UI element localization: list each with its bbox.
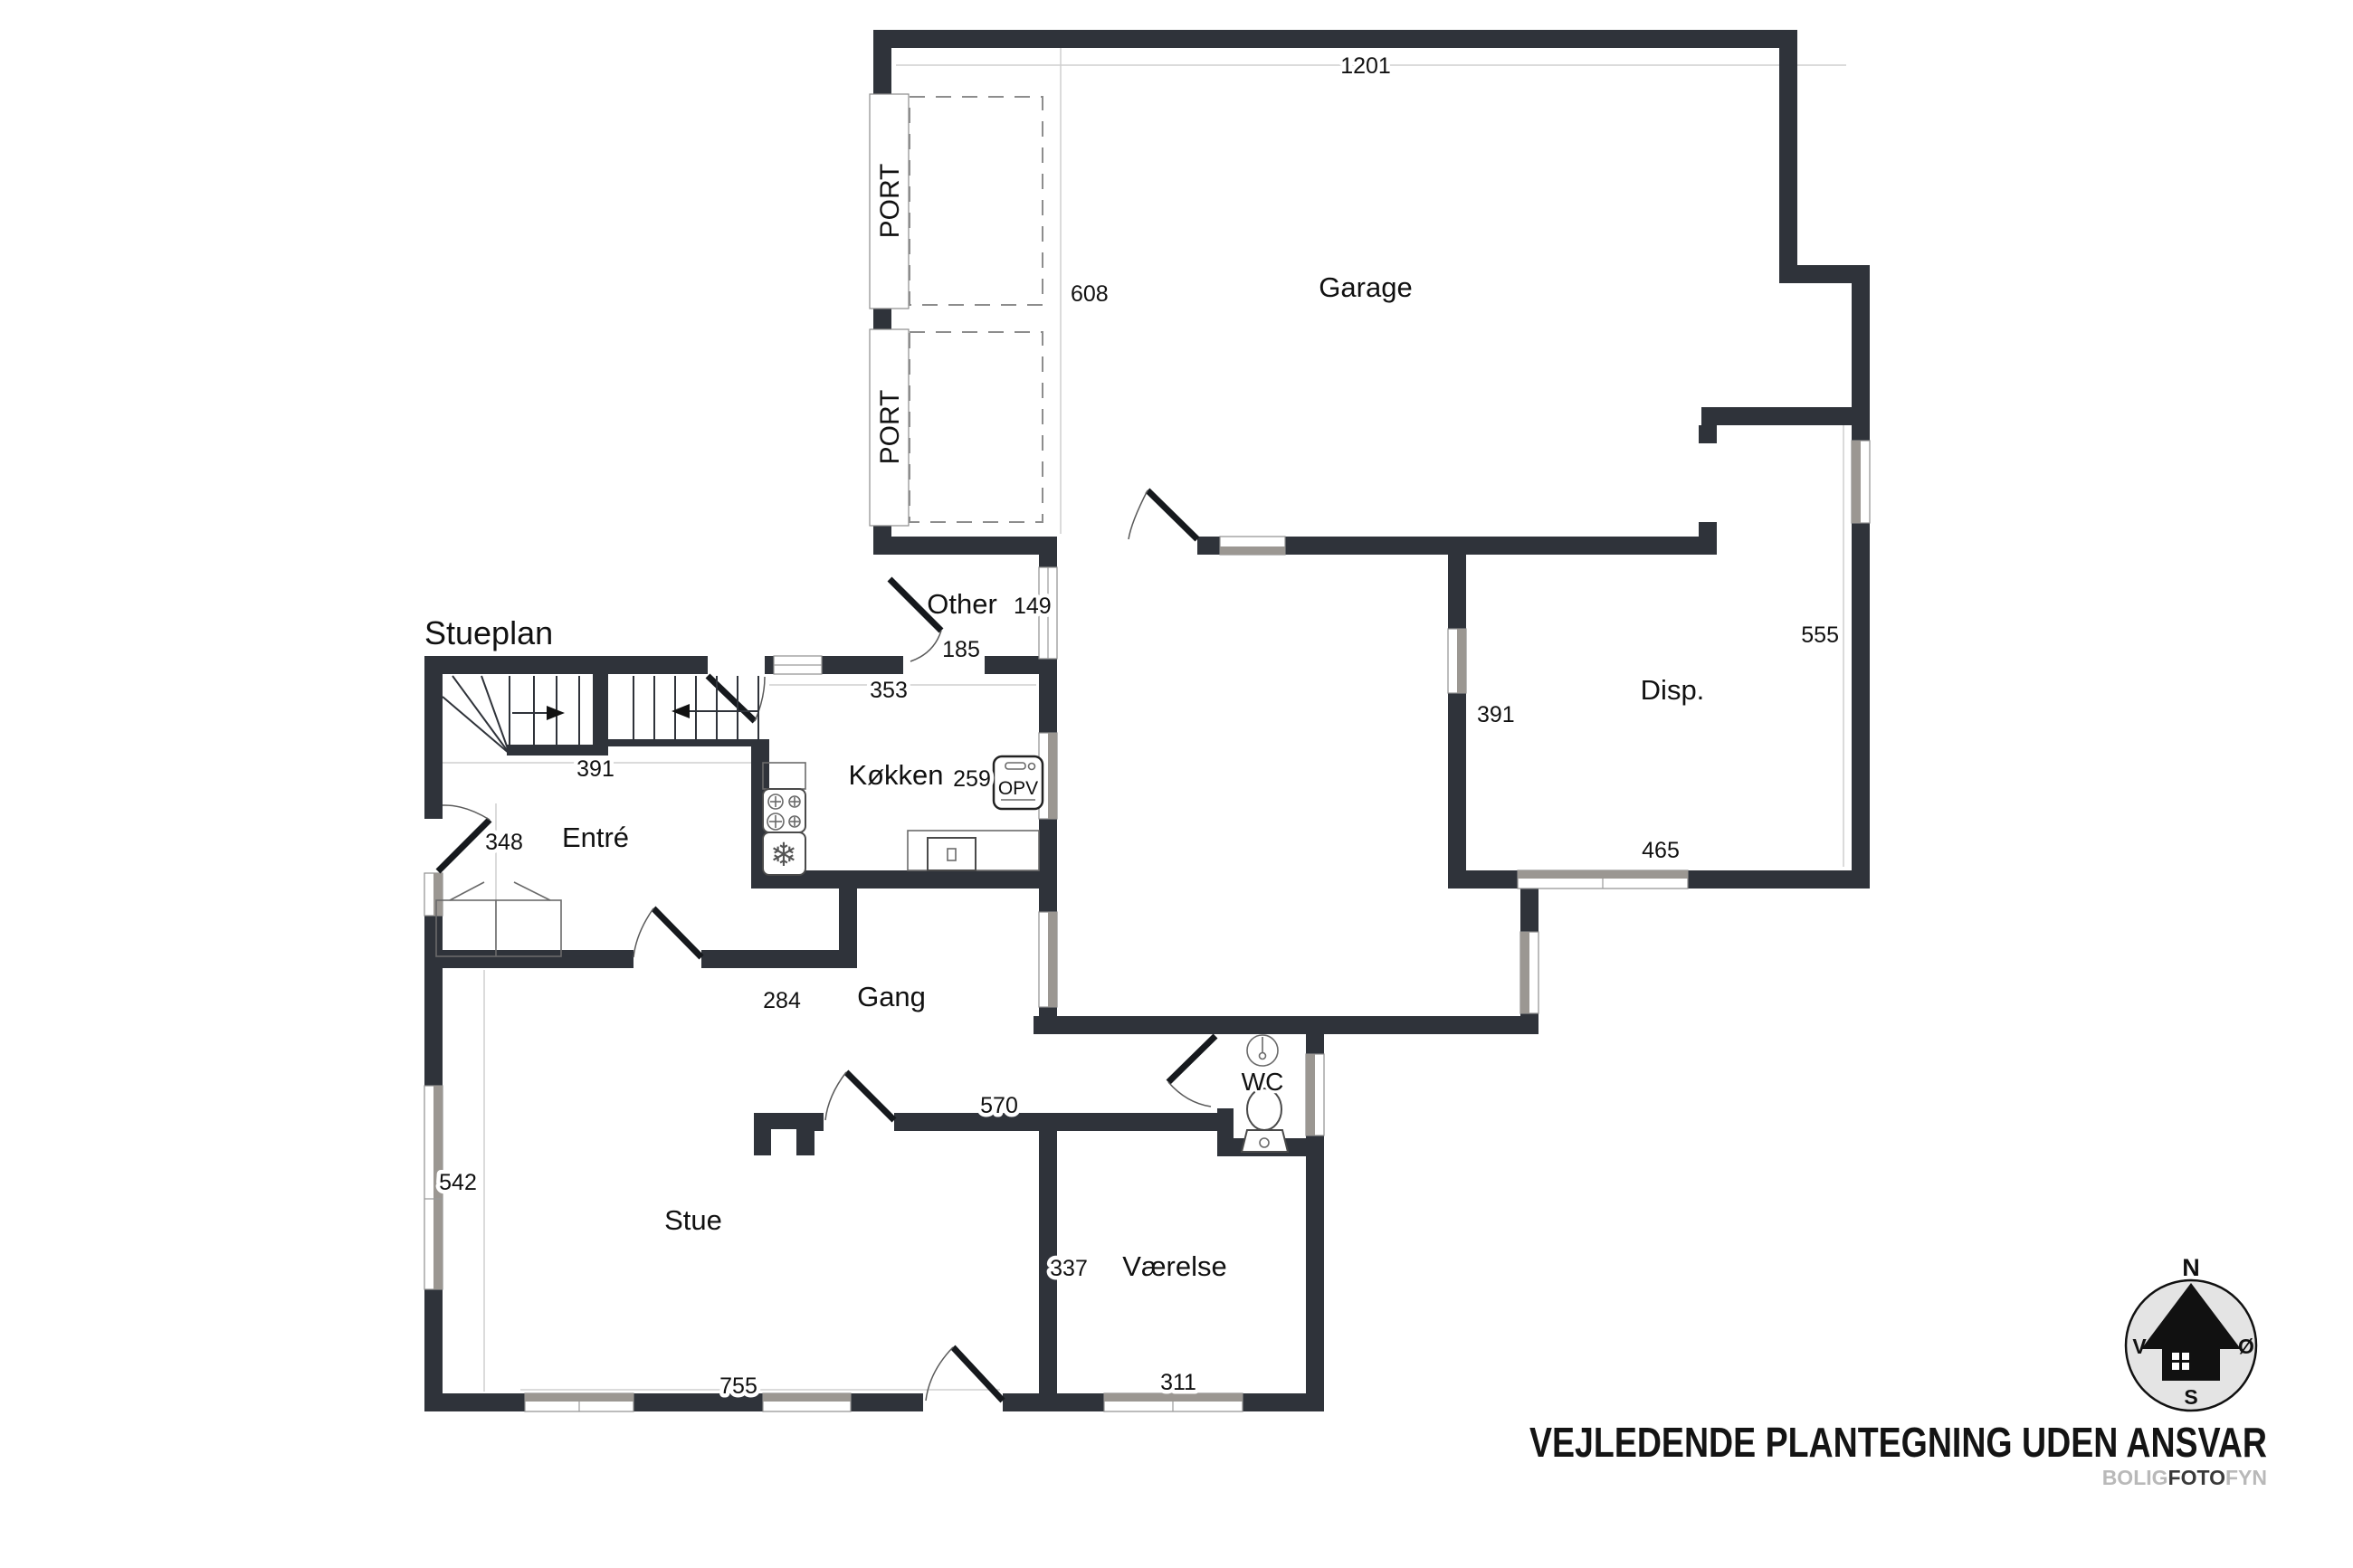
garage-bottom-wall-left (873, 537, 1057, 555)
compass-south-label: S (2184, 1385, 2197, 1409)
dim-gang: 284 (763, 988, 801, 1013)
dim-disp-left: 391 (1477, 702, 1515, 727)
gang-stue-wall-right (894, 1113, 1217, 1131)
garage-bottom-door-post (1039, 537, 1057, 567)
door-garage-to-utility (1129, 490, 1197, 539)
disp-opening-stub-lower (1699, 522, 1717, 540)
room-label-kokken: Køkken (848, 759, 943, 791)
port-upper-label: PORT (875, 164, 905, 239)
dim-vaerelse-bottom: 311 (1160, 1370, 1196, 1395)
door-wc (1168, 1036, 1215, 1107)
dim-stue-left: 542 (439, 1170, 477, 1195)
compass-west-label: V (2132, 1335, 2147, 1358)
dim-stue-bottom: 755 (719, 1373, 757, 1399)
door-gang-to-stue (825, 1072, 894, 1120)
stove-icon (763, 789, 805, 832)
wc-sink-icon (1247, 1035, 1278, 1066)
house-left-wall (424, 656, 443, 1411)
wc-left-lower-wall (1217, 1108, 1234, 1156)
door-entre-to-stue (633, 908, 701, 957)
walls (424, 30, 1870, 1411)
svg-text:❄: ❄ (770, 836, 797, 873)
brand-fyn: FYN (2225, 1466, 2267, 1489)
garage-ports: PORT PORT (870, 94, 1043, 526)
kitchen-counter-upper (763, 763, 805, 789)
dim-garage-depth: 608 (1071, 281, 1109, 307)
room-label-wc: WC (1242, 1068, 1284, 1096)
opv-label: OPV (998, 778, 1038, 799)
floor-plan-page: PORT PORT (0, 0, 2353, 1568)
wardrobe (436, 882, 561, 956)
disp-top-wall (1701, 407, 1852, 425)
dim-disp-right: 555 (1801, 622, 1839, 648)
port-upper-door-dashed (910, 97, 1043, 305)
wc-corridor-top-wall (1034, 1016, 1538, 1034)
dim-other: 149 (1014, 594, 1052, 619)
dishwasher-opv: OPV (994, 756, 1043, 809)
stair-bottom-wall-right (608, 739, 769, 746)
garage-right-step-wall (1779, 265, 1870, 283)
port-lower-door-dashed (910, 332, 1043, 522)
garage-right-wall-upper (1779, 48, 1797, 265)
compass-east-label: Ø (2238, 1335, 2254, 1358)
gang-west-stub-wall (839, 876, 857, 961)
entre-bottom-wall-right (701, 950, 857, 968)
gang-east-wall-a (1039, 889, 1057, 912)
east-outer-wall (1852, 283, 1870, 889)
wc-left-stub (1199, 1116, 1217, 1128)
disp-opening-stub-upper (1699, 425, 1717, 443)
port-lower-label: PORT (875, 390, 905, 465)
doors (438, 490, 1215, 1401)
garage-left-wall-upper (873, 48, 891, 97)
footer: VEJLEDENDE PLANTEGNING UDEN ANSVAR BOLIG… (1529, 1419, 2267, 1489)
dim-kokken: 259 (953, 766, 991, 792)
dimension-labels: 1201 608 555 391 465 149 185 353 259 391… (439, 53, 1839, 1399)
room-label-other: Other (927, 588, 997, 620)
dim-other-b: 185 (942, 637, 980, 662)
room-label-entre: Entré (562, 822, 629, 853)
brand-logo: BOLIGFOTOFYN (2102, 1466, 2267, 1489)
brand-foto: FOTO (2168, 1466, 2225, 1489)
kokken-east-wall-a (1039, 659, 1057, 733)
entre-bottom-wall-left (424, 950, 633, 968)
dim-gang-b: 570 (980, 1093, 1018, 1118)
floor-plan-drawing: PORT PORT (0, 0, 2353, 1568)
page-title: Stueplan (424, 614, 553, 651)
dim-kokken-top: 353 (870, 678, 908, 703)
door-front-entrance (438, 805, 490, 871)
door-stue-patio (926, 1347, 1003, 1401)
room-label-vaerelse: Værelse (1122, 1250, 1226, 1282)
compass-north-label: N (2182, 1254, 2200, 1281)
dim-disp-bottom: 465 (1642, 838, 1680, 863)
sink-icon (928, 838, 976, 870)
brand-bolig: BOLIG (2102, 1466, 2168, 1489)
stair-flight-left (443, 676, 579, 754)
dim-vaerelse: 337 (1050, 1256, 1088, 1281)
disp-left-wall (1448, 555, 1466, 889)
toilet-icon (1242, 1088, 1288, 1152)
stair-flight-right (633, 676, 758, 745)
garage-left-wall-mid (873, 305, 891, 333)
room-label-gang: Gang (857, 981, 926, 1012)
stair-divider-wall (593, 674, 608, 755)
compass: N S V Ø (2126, 1254, 2256, 1411)
room-label-disp: Disp. (1641, 674, 1705, 706)
room-label-stue: Stue (664, 1204, 722, 1236)
room-label-garage: Garage (1319, 271, 1412, 303)
dim-garage-width: 1201 (1340, 53, 1391, 79)
house-top-wall (424, 656, 903, 674)
dim-entre: 348 (485, 830, 523, 855)
freezer-icon: ❄ (763, 832, 805, 875)
dim-stair: 391 (576, 756, 614, 782)
garage-top-wall (873, 30, 1797, 48)
chimney-notch (771, 1129, 796, 1155)
dimension-lines (443, 36, 1846, 1392)
gang-east-wall-b (1039, 1007, 1057, 1034)
disclaimer-text: VEJLEDENDE PLANTEGNING UDEN ANSVAR (1529, 1419, 2267, 1466)
